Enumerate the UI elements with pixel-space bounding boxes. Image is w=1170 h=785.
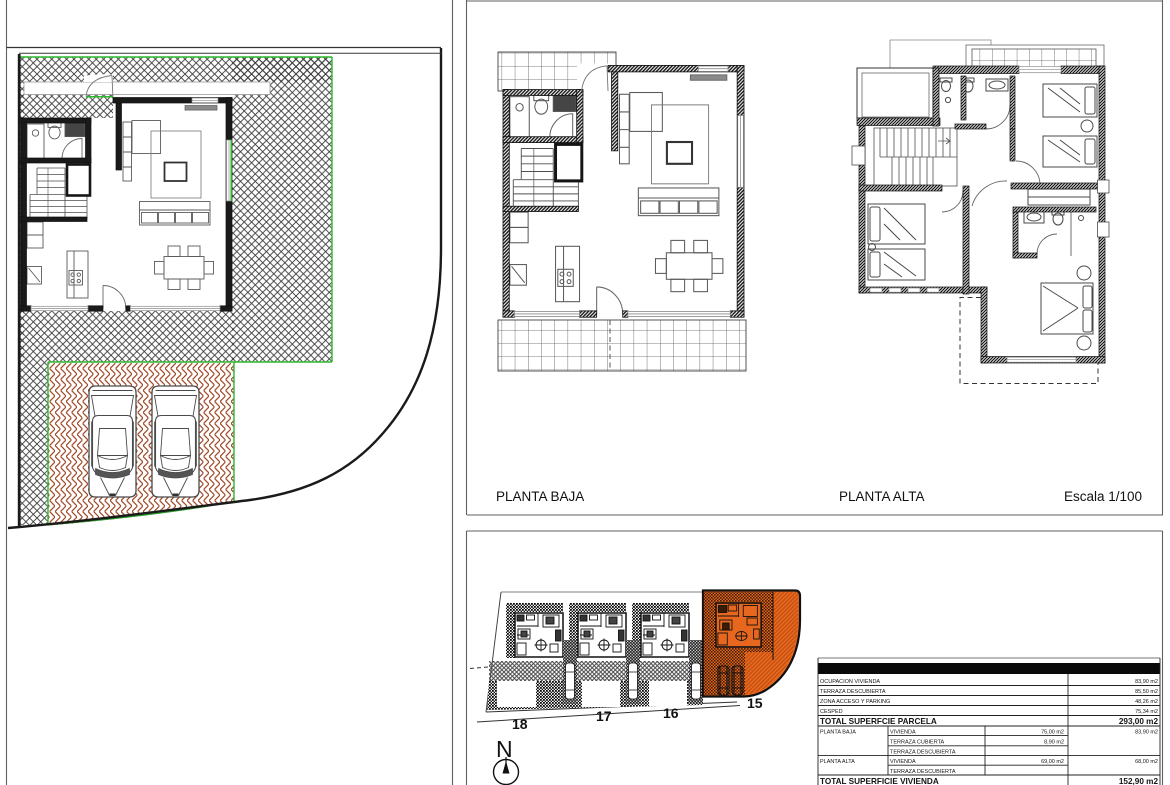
svg-text:293,00 m2: 293,00 m2 [1119,717,1159,726]
svg-text:PLANTA BAJA: PLANTA BAJA [496,489,584,504]
svg-text:TERRAZA DESCUBIERTA: TERRAZA DESCUBIERTA [890,769,956,775]
svg-text:TERRAZA DESCUBIERTA: TERRAZA DESCUBIERTA [890,750,956,756]
svg-text:VIVIENDA: VIVIENDA [890,730,916,736]
svg-text:OCUPACION VIVIENDA: OCUPACION VIVIENDA [820,679,880,685]
svg-text:Escala 1/100: Escala 1/100 [1064,489,1142,504]
svg-text:83,90 m2: 83,90 m2 [1135,730,1158,736]
svg-text:ZONA ACCESO Y PARKING: ZONA ACCESO Y PARKING [820,699,890,705]
svg-text:8,90 m2: 8,90 m2 [1044,740,1064,746]
svg-text:TOTAL SUPERFCIE PARCELA: TOTAL SUPERFCIE PARCELA [820,717,937,726]
svg-text:69,00 m2: 69,00 m2 [1041,759,1064,765]
svg-text:15: 15 [747,695,763,711]
svg-text:68,00 m2: 68,00 m2 [1135,759,1158,765]
svg-text:75,34 m2: 75,34 m2 [1135,709,1158,715]
svg-text:85,50 m2: 85,50 m2 [1135,689,1158,695]
svg-text:TOTAL SUPERFICIE VIVIENDA: TOTAL SUPERFICIE VIVIENDA [820,777,939,785]
svg-text:152,90 m2: 152,90 m2 [1119,777,1159,785]
svg-text:PLANTA BAJA: PLANTA BAJA [820,730,856,736]
svg-text:TERRAZA DESCUBIERTA: TERRAZA DESCUBIERTA [820,689,886,695]
svg-text:16: 16 [663,705,679,721]
svg-text:CESPED: CESPED [820,709,843,715]
svg-text:PLANTA ALTA: PLANTA ALTA [839,489,925,504]
svg-text:48,26 m2: 48,26 m2 [1135,699,1158,705]
svg-text:VIVIENDA: VIVIENDA [890,759,916,765]
svg-text:18: 18 [512,716,528,732]
svg-text:N: N [496,736,513,762]
svg-text:83,90 m2: 83,90 m2 [1135,679,1158,685]
svg-text:TERRAZA CUBIERTA: TERRAZA CUBIERTA [890,740,945,746]
svg-text:PLANTA ALTA: PLANTA ALTA [820,759,855,765]
svg-text:17: 17 [596,708,612,724]
svg-text:75,00 m2: 75,00 m2 [1041,730,1064,736]
